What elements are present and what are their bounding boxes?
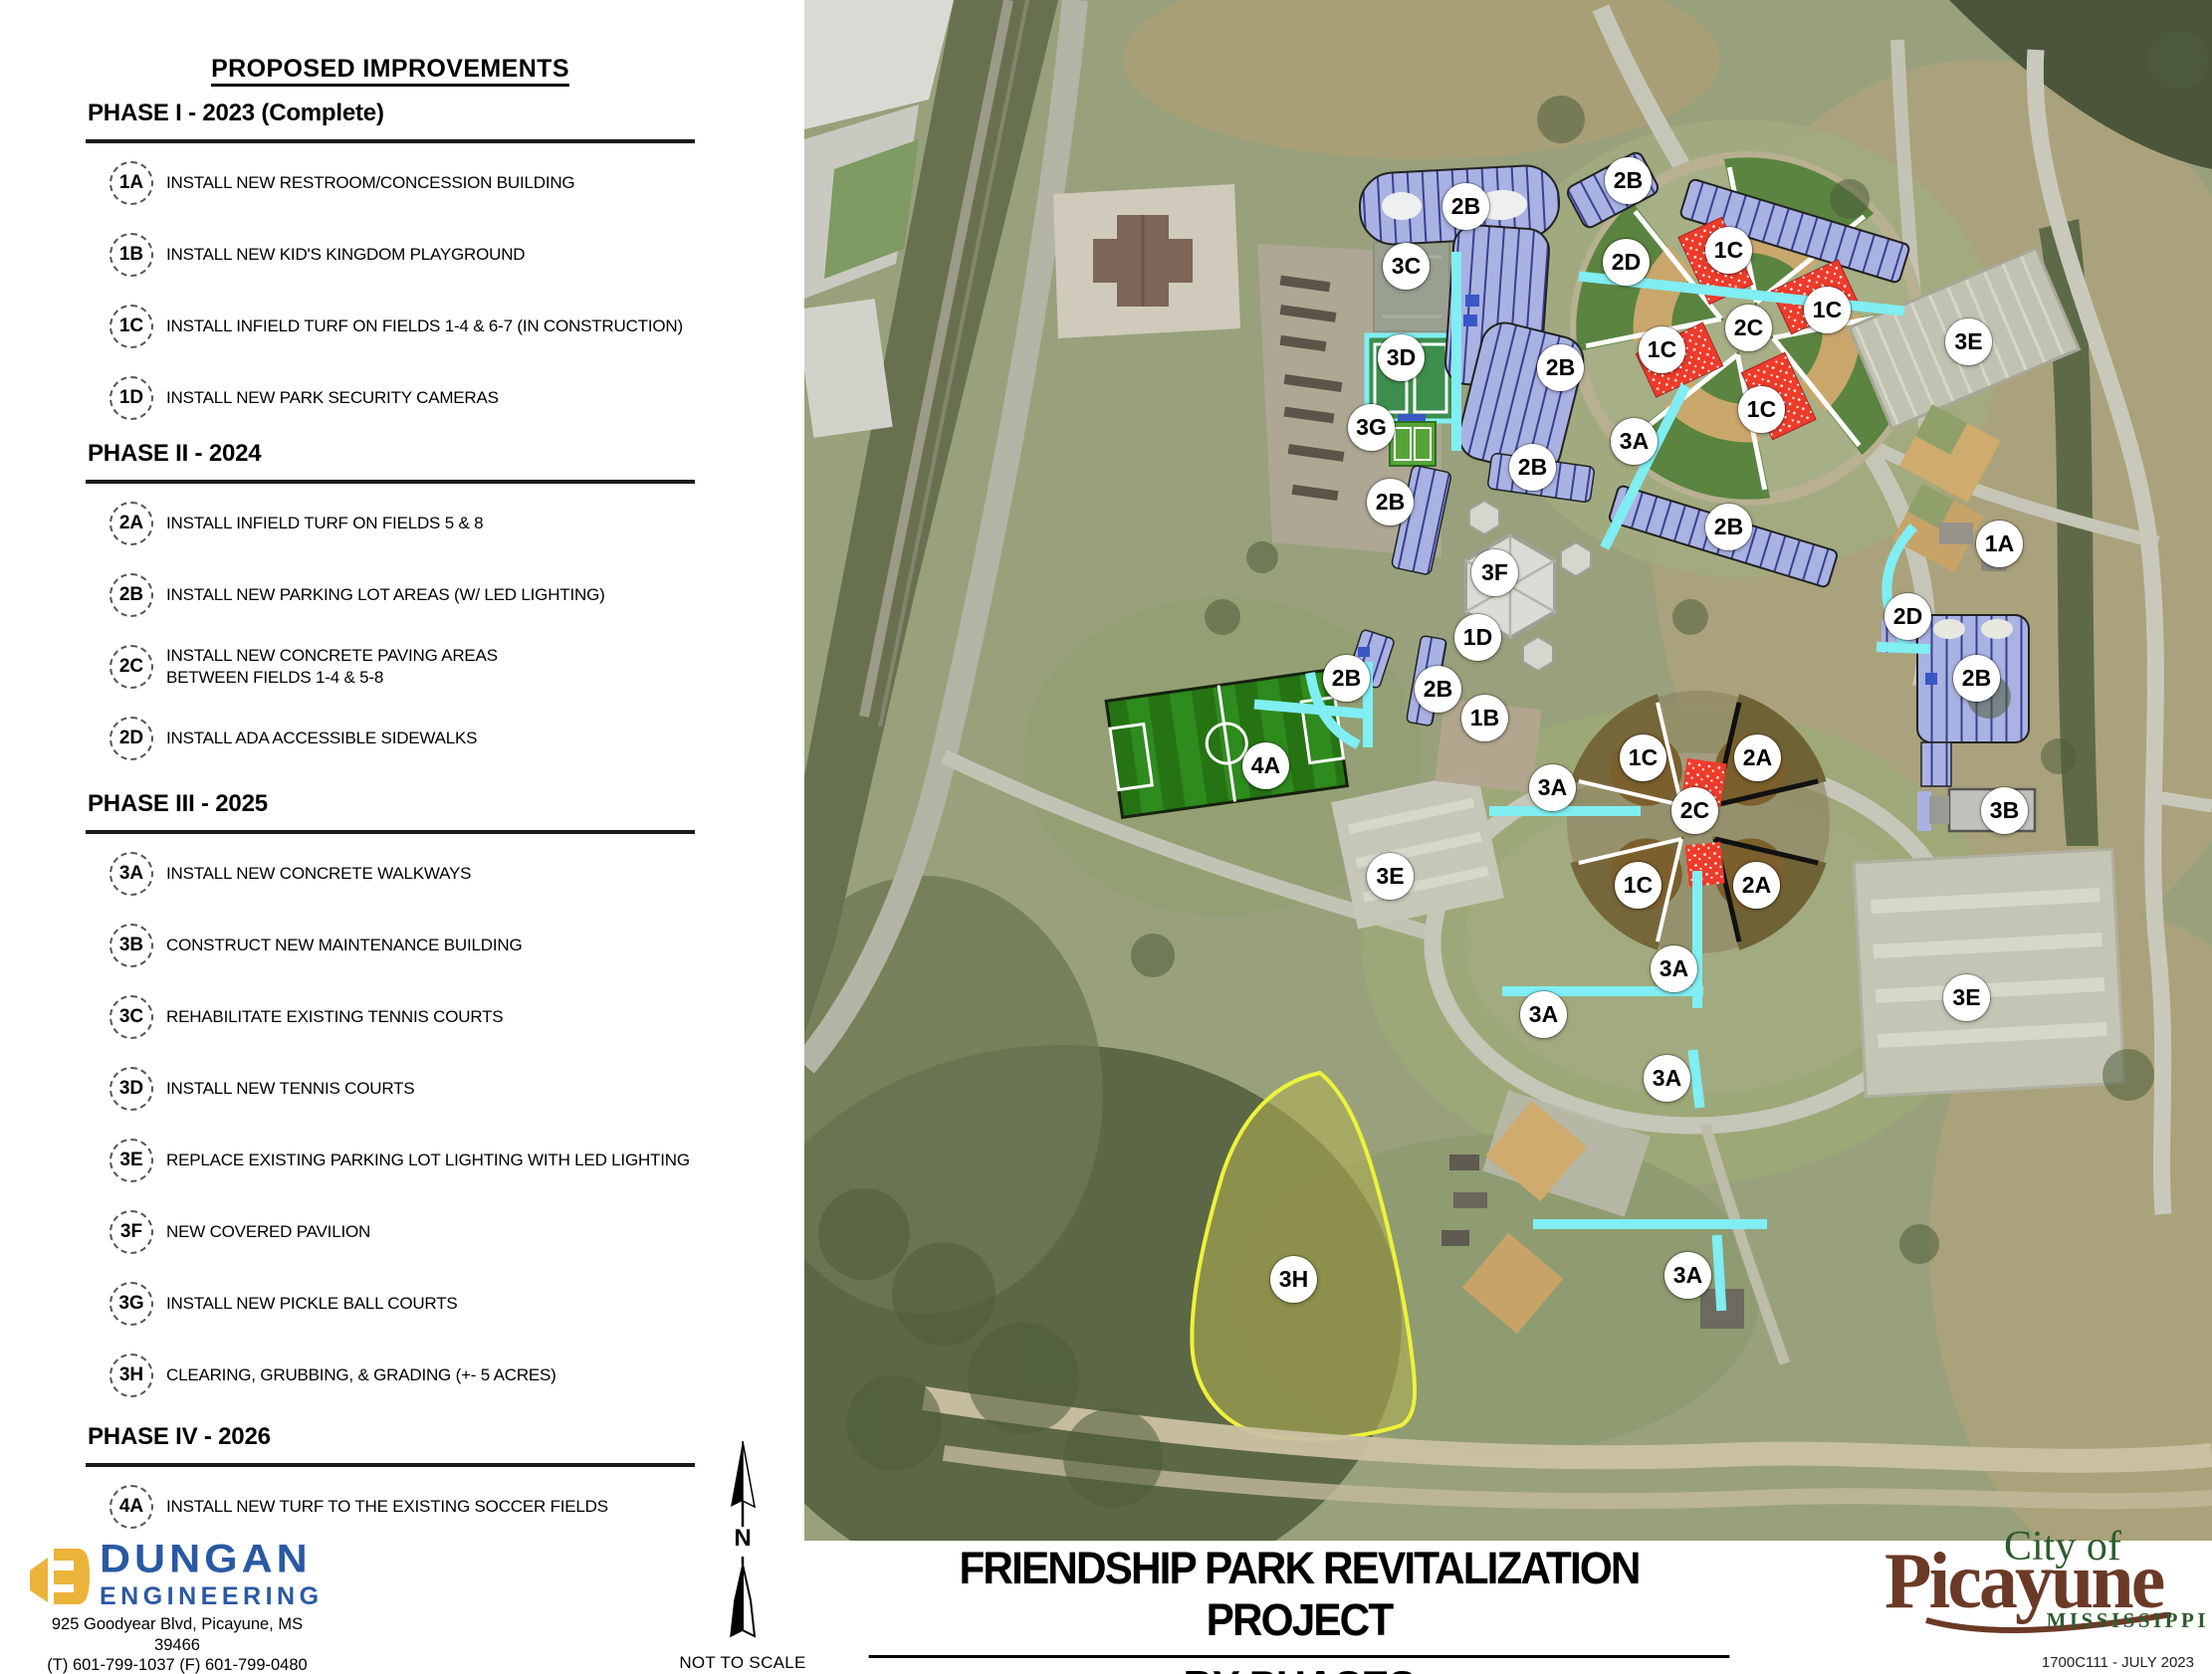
map-marker: 3A: [1664, 1252, 1711, 1299]
map-marker-label: 1C: [1813, 297, 1842, 323]
map-marker-label: 2B: [1332, 665, 1361, 692]
map-marker: 2B: [1415, 666, 1461, 713]
map-marker-label: 2B: [1714, 514, 1743, 540]
legend-phases: PHASE I - 2023 (Complete) 1A INSTALL NEW…: [86, 100, 695, 1543]
dungan-logo-icon: [28, 1541, 92, 1612]
map-marker-label: 1D: [1463, 624, 1492, 651]
map-marker-label: 3E: [1954, 328, 1982, 355]
legend-item-code: 1A: [110, 161, 153, 205]
legend-item: 2A INSTALL INFIELD TURF ON FIELDS 5 & 8: [86, 488, 695, 559]
engineer-subname: ENGINEERING: [100, 1582, 324, 1611]
plan-sheet: PROPOSED IMPROVEMENTS PHASE I - 2023 (Co…: [0, 0, 2212, 1674]
map-marker-label: 1C: [1714, 237, 1743, 264]
legend-item-text: INSTALL NEW KID'S KINGDOM PLAYGROUND: [166, 244, 525, 266]
legend-item-text: INSTALL NEW TURF TO THE EXISTING SOCCER …: [166, 1496, 608, 1518]
map-marker: 2D: [1603, 239, 1650, 286]
legend-item: 1A INSTALL NEW RESTROOM/CONCESSION BUILD…: [86, 147, 695, 219]
map-marker: 1C: [1620, 734, 1666, 781]
legend-item-text: INSTALL NEW RESTROOM/CONCESSION BUILDING: [166, 172, 574, 194]
map-marker: 1B: [1461, 695, 1508, 741]
map-marker: 3A: [1644, 1055, 1690, 1102]
sheet-number: 1700C111 - JULY 2023: [2042, 1654, 2194, 1671]
city-logo-state: MISSISSIPPI: [2047, 1608, 2209, 1633]
map-marker-label: 3E: [1376, 863, 1404, 890]
map-marker-label: 3E: [1952, 984, 1980, 1011]
engineer-address: 925 Goodyear Blvd, Picayune, MS 39466: [28, 1614, 327, 1655]
sheet-title: FRIENDSHIP PARK REVITALIZATION PROJECT: [869, 1543, 1730, 1658]
map-marker-label: 3F: [1481, 559, 1508, 586]
map-marker: 2B: [1705, 504, 1752, 550]
map-marker: 3A: [1651, 945, 1697, 992]
map-marker: 2B: [1509, 444, 1556, 491]
legend-item: 2C INSTALL NEW CONCRETE PAVING AREAS BET…: [86, 631, 695, 703]
map-marker-label: 2C: [1680, 797, 1709, 824]
map-marker: 2B: [1537, 344, 1584, 391]
map-marker: 2B: [1442, 183, 1489, 230]
phase-heading: PHASE III - 2025: [86, 790, 695, 834]
map-marker-label: 2B: [1962, 665, 1991, 692]
map-marker: 3B: [1981, 787, 2028, 834]
map-marker-label: 3H: [1279, 1266, 1308, 1293]
legend-item-text: REPLACE EXISTING PARKING LOT LIGHTING WI…: [166, 1150, 690, 1171]
legend-item-code: 1B: [110, 233, 153, 277]
legend-item-text: CONSTRUCT NEW MAINTENANCE BUILDING: [166, 935, 522, 956]
map-marker-label: 2C: [1734, 314, 1763, 341]
map-marker: 3A: [1611, 418, 1658, 465]
map-marker: 2A: [1734, 734, 1781, 781]
map-marker-label: 1A: [1985, 530, 2014, 557]
legend-item: 3H CLEARING, GRUBBING, & GRADING (+- 5 A…: [86, 1340, 695, 1411]
legend-phase: PHASE III - 2025 3A INSTALL NEW CONCRETE…: [86, 790, 695, 1411]
legend-item-code: 2B: [110, 573, 153, 617]
map-marker: 2B: [1953, 655, 2000, 702]
legend-item-code: 3C: [110, 995, 153, 1039]
map-marker-label: 3A: [1653, 1065, 1681, 1092]
legend-item-code: 2A: [110, 502, 153, 545]
map-marker-label: 3G: [1356, 414, 1387, 441]
map-marker-label: 3C: [1392, 253, 1421, 280]
legend-item-code: 2C: [110, 645, 153, 689]
legend-item-code: 1C: [110, 305, 153, 348]
legend-item-code: 3A: [110, 852, 153, 896]
legend-item-text: INSTALL NEW PICKLE BALL COURTS: [166, 1293, 458, 1315]
map-marker-label: 3A: [1538, 774, 1567, 801]
map-marker-label: 3A: [1620, 428, 1649, 455]
legend-item-text: INSTALL INFIELD TURF ON FIELDS 1-4 & 6-7…: [166, 315, 683, 337]
phase-heading: PHASE II - 2024: [86, 440, 695, 484]
legend-item: 3G INSTALL NEW PICKLE BALL COURTS: [86, 1268, 695, 1340]
legend-phase: PHASE I - 2023 (Complete) 1A INSTALL NEW…: [86, 100, 695, 434]
map-marker-label: 3D: [1387, 344, 1416, 371]
legend-item-code: 3G: [110, 1282, 153, 1326]
legend-phase: PHASE II - 2024 2A INSTALL INFIELD TURF …: [86, 440, 695, 774]
map-marker: 2B: [1367, 479, 1414, 525]
map-marker-label: 4A: [1251, 752, 1280, 779]
legend-item: 3F NEW COVERED PAVILION: [86, 1196, 695, 1268]
legend-item-text: INSTALL NEW PARK SECURITY CAMERAS: [166, 387, 499, 409]
map-marker-label: 3A: [1529, 1001, 1558, 1028]
city-logo: City of Picayune MISSISSIPPI: [1884, 1525, 2211, 1642]
map-marker-label: 3B: [1990, 797, 2019, 824]
map-marker-label: 3A: [1659, 955, 1688, 982]
legend-panel: PHASE I - 2023 (Complete) 1A INSTALL NEW…: [86, 100, 695, 1549]
legend-item: 1D INSTALL NEW PARK SECURITY CAMERAS: [86, 362, 695, 434]
legend-item-code: 1D: [110, 376, 153, 420]
legend-item-code: 4A: [110, 1485, 153, 1529]
legend-item: 3D INSTALL NEW TENNIS COURTS: [86, 1053, 695, 1125]
map-marker-label: 2B: [1424, 676, 1452, 703]
map-marker-label: 2B: [1614, 167, 1643, 194]
legend-item-code: 3F: [110, 1210, 153, 1254]
legend-item-text: REHABILITATE EXISTING TENNIS COURTS: [166, 1006, 503, 1028]
map-markers-layer: 2B 2B 2D 1C 3C 1C: [804, 0, 2212, 1541]
legend-item-text: INSTALL NEW CONCRETE PAVING AREAS BETWEE…: [166, 645, 498, 689]
map-marker-label: 2B: [1451, 193, 1480, 220]
legend-item-code: 3B: [110, 924, 153, 967]
map-marker: 2C: [1725, 305, 1772, 351]
map-marker: 3E: [1945, 318, 1992, 365]
map-marker: 4A: [1242, 742, 1289, 789]
map-marker-label: 3A: [1673, 1262, 1702, 1289]
legend-item-code: 3E: [110, 1139, 153, 1182]
map-marker-label: 2A: [1743, 744, 1772, 771]
scale-note: NOT TO SCALE: [662, 1653, 823, 1673]
legend-item-code: 2D: [110, 717, 153, 760]
legend-item-text: CLEARING, GRUBBING, & GRADING (+- 5 ACRE…: [166, 1364, 556, 1386]
map-marker: 2D: [1884, 593, 1931, 640]
map-marker: 2A: [1733, 862, 1780, 909]
map-marker: 3F: [1471, 549, 1518, 596]
phase-items: 4A INSTALL NEW TURF TO THE EXISTING SOCC…: [86, 1467, 695, 1543]
site-map: 2B 2B 2D 1C 3C 1C: [804, 0, 2212, 1541]
legend-title: PROPOSED IMPROVEMENTS: [86, 55, 695, 84]
legend-item: 4A INSTALL NEW TURF TO THE EXISTING SOCC…: [86, 1471, 695, 1543]
map-marker: 1D: [1454, 614, 1501, 661]
map-marker: 1C: [1804, 287, 1851, 333]
legend-item-code: 3H: [110, 1354, 153, 1397]
map-marker-label: 2D: [1893, 603, 1922, 630]
legend-item: 3A INSTALL NEW CONCRETE WALKWAYS: [86, 838, 695, 910]
legend-item: 1B INSTALL NEW KID'S KINGDOM PLAYGROUND: [86, 219, 695, 291]
map-marker: 3G: [1348, 404, 1395, 451]
map-marker-label: 2A: [1742, 872, 1771, 899]
engineer-name: DUNGAN: [100, 1541, 324, 1578]
map-marker-label: 1C: [1624, 872, 1653, 899]
map-marker-label: 1B: [1470, 705, 1499, 732]
phase-items: 1A INSTALL NEW RESTROOM/CONCESSION BUILD…: [86, 143, 695, 434]
map-marker: 1C: [1705, 227, 1752, 274]
map-marker-label: 2B: [1376, 489, 1405, 516]
engineer-phone: (T) 601-799-1037 (F) 601-799-0480: [28, 1655, 327, 1674]
phase-heading: PHASE I - 2023 (Complete): [86, 100, 695, 143]
map-marker: 2B: [1323, 655, 1370, 702]
legend-item-text: INSTALL NEW PARKING LOT AREAS (W/ LED LI…: [166, 584, 605, 606]
map-marker: 3D: [1378, 334, 1425, 381]
map-marker-label: 2B: [1546, 354, 1575, 381]
map-marker: 1C: [1615, 862, 1661, 909]
legend-item-text: INSTALL NEW CONCRETE WALKWAYS: [166, 863, 471, 885]
map-marker: 3C: [1383, 243, 1430, 290]
map-marker: 1C: [1639, 326, 1685, 373]
map-marker: 3A: [1520, 991, 1567, 1038]
title-block: FRIENDSHIP PARK REVITALIZATION PROJECT -…: [841, 1543, 1757, 1674]
legend-item: 3C REHABILITATE EXISTING TENNIS COURTS: [86, 981, 695, 1053]
map-marker: 3A: [1529, 764, 1576, 811]
map-marker-label: 2B: [1518, 454, 1547, 481]
sheet-subtitle: - BY PHASES -: [841, 1662, 1757, 1674]
map-marker: 2B: [1605, 157, 1652, 204]
north-arrow: N NOT TO SCALE: [662, 1439, 823, 1673]
map-marker: 3H: [1270, 1256, 1317, 1303]
map-marker: 2C: [1671, 787, 1718, 834]
legend-item-code: 3D: [110, 1067, 153, 1111]
legend-item-text: INSTALL ADA ACCESSIBLE SIDEWALKS: [166, 728, 477, 749]
phase-items: 3A INSTALL NEW CONCRETE WALKWAYS 3B CONS…: [86, 834, 695, 1411]
engineer-logo-block: DUNGAN ENGINEERING 925 Goodyear Blvd, Pi…: [28, 1541, 336, 1674]
legend-item: 1C INSTALL INFIELD TURF ON FIELDS 1-4 & …: [86, 291, 695, 362]
legend-item-text: INSTALL INFIELD TURF ON FIELDS 5 & 8: [166, 513, 483, 534]
map-marker: 3E: [1367, 853, 1414, 900]
north-letter: N: [662, 1525, 823, 1553]
map-marker: 1A: [1976, 521, 2023, 567]
map-marker-label: 1C: [1747, 396, 1776, 423]
phase-heading: PHASE IV - 2026: [86, 1423, 695, 1467]
map-marker-label: 1C: [1629, 744, 1658, 771]
map-marker-label: 1C: [1648, 336, 1676, 363]
legend-item-text: NEW COVERED PAVILION: [166, 1221, 370, 1243]
legend-item: 3E REPLACE EXISTING PARKING LOT LIGHTING…: [86, 1125, 695, 1196]
legend-item: 2B INSTALL NEW PARKING LOT AREAS (W/ LED…: [86, 559, 695, 631]
legend-phase: PHASE IV - 2026 4A INSTALL NEW TURF TO T…: [86, 1423, 695, 1543]
map-marker: 1C: [1738, 386, 1785, 433]
map-marker-label: 2D: [1612, 249, 1641, 276]
phase-items: 2A INSTALL INFIELD TURF ON FIELDS 5 & 8 …: [86, 484, 695, 774]
legend-item: 2D INSTALL ADA ACCESSIBLE SIDEWALKS: [86, 703, 695, 774]
legend-item: 3B CONSTRUCT NEW MAINTENANCE BUILDING: [86, 910, 695, 981]
map-marker: 3E: [1943, 974, 1990, 1021]
legend-item-text: INSTALL NEW TENNIS COURTS: [166, 1078, 414, 1100]
